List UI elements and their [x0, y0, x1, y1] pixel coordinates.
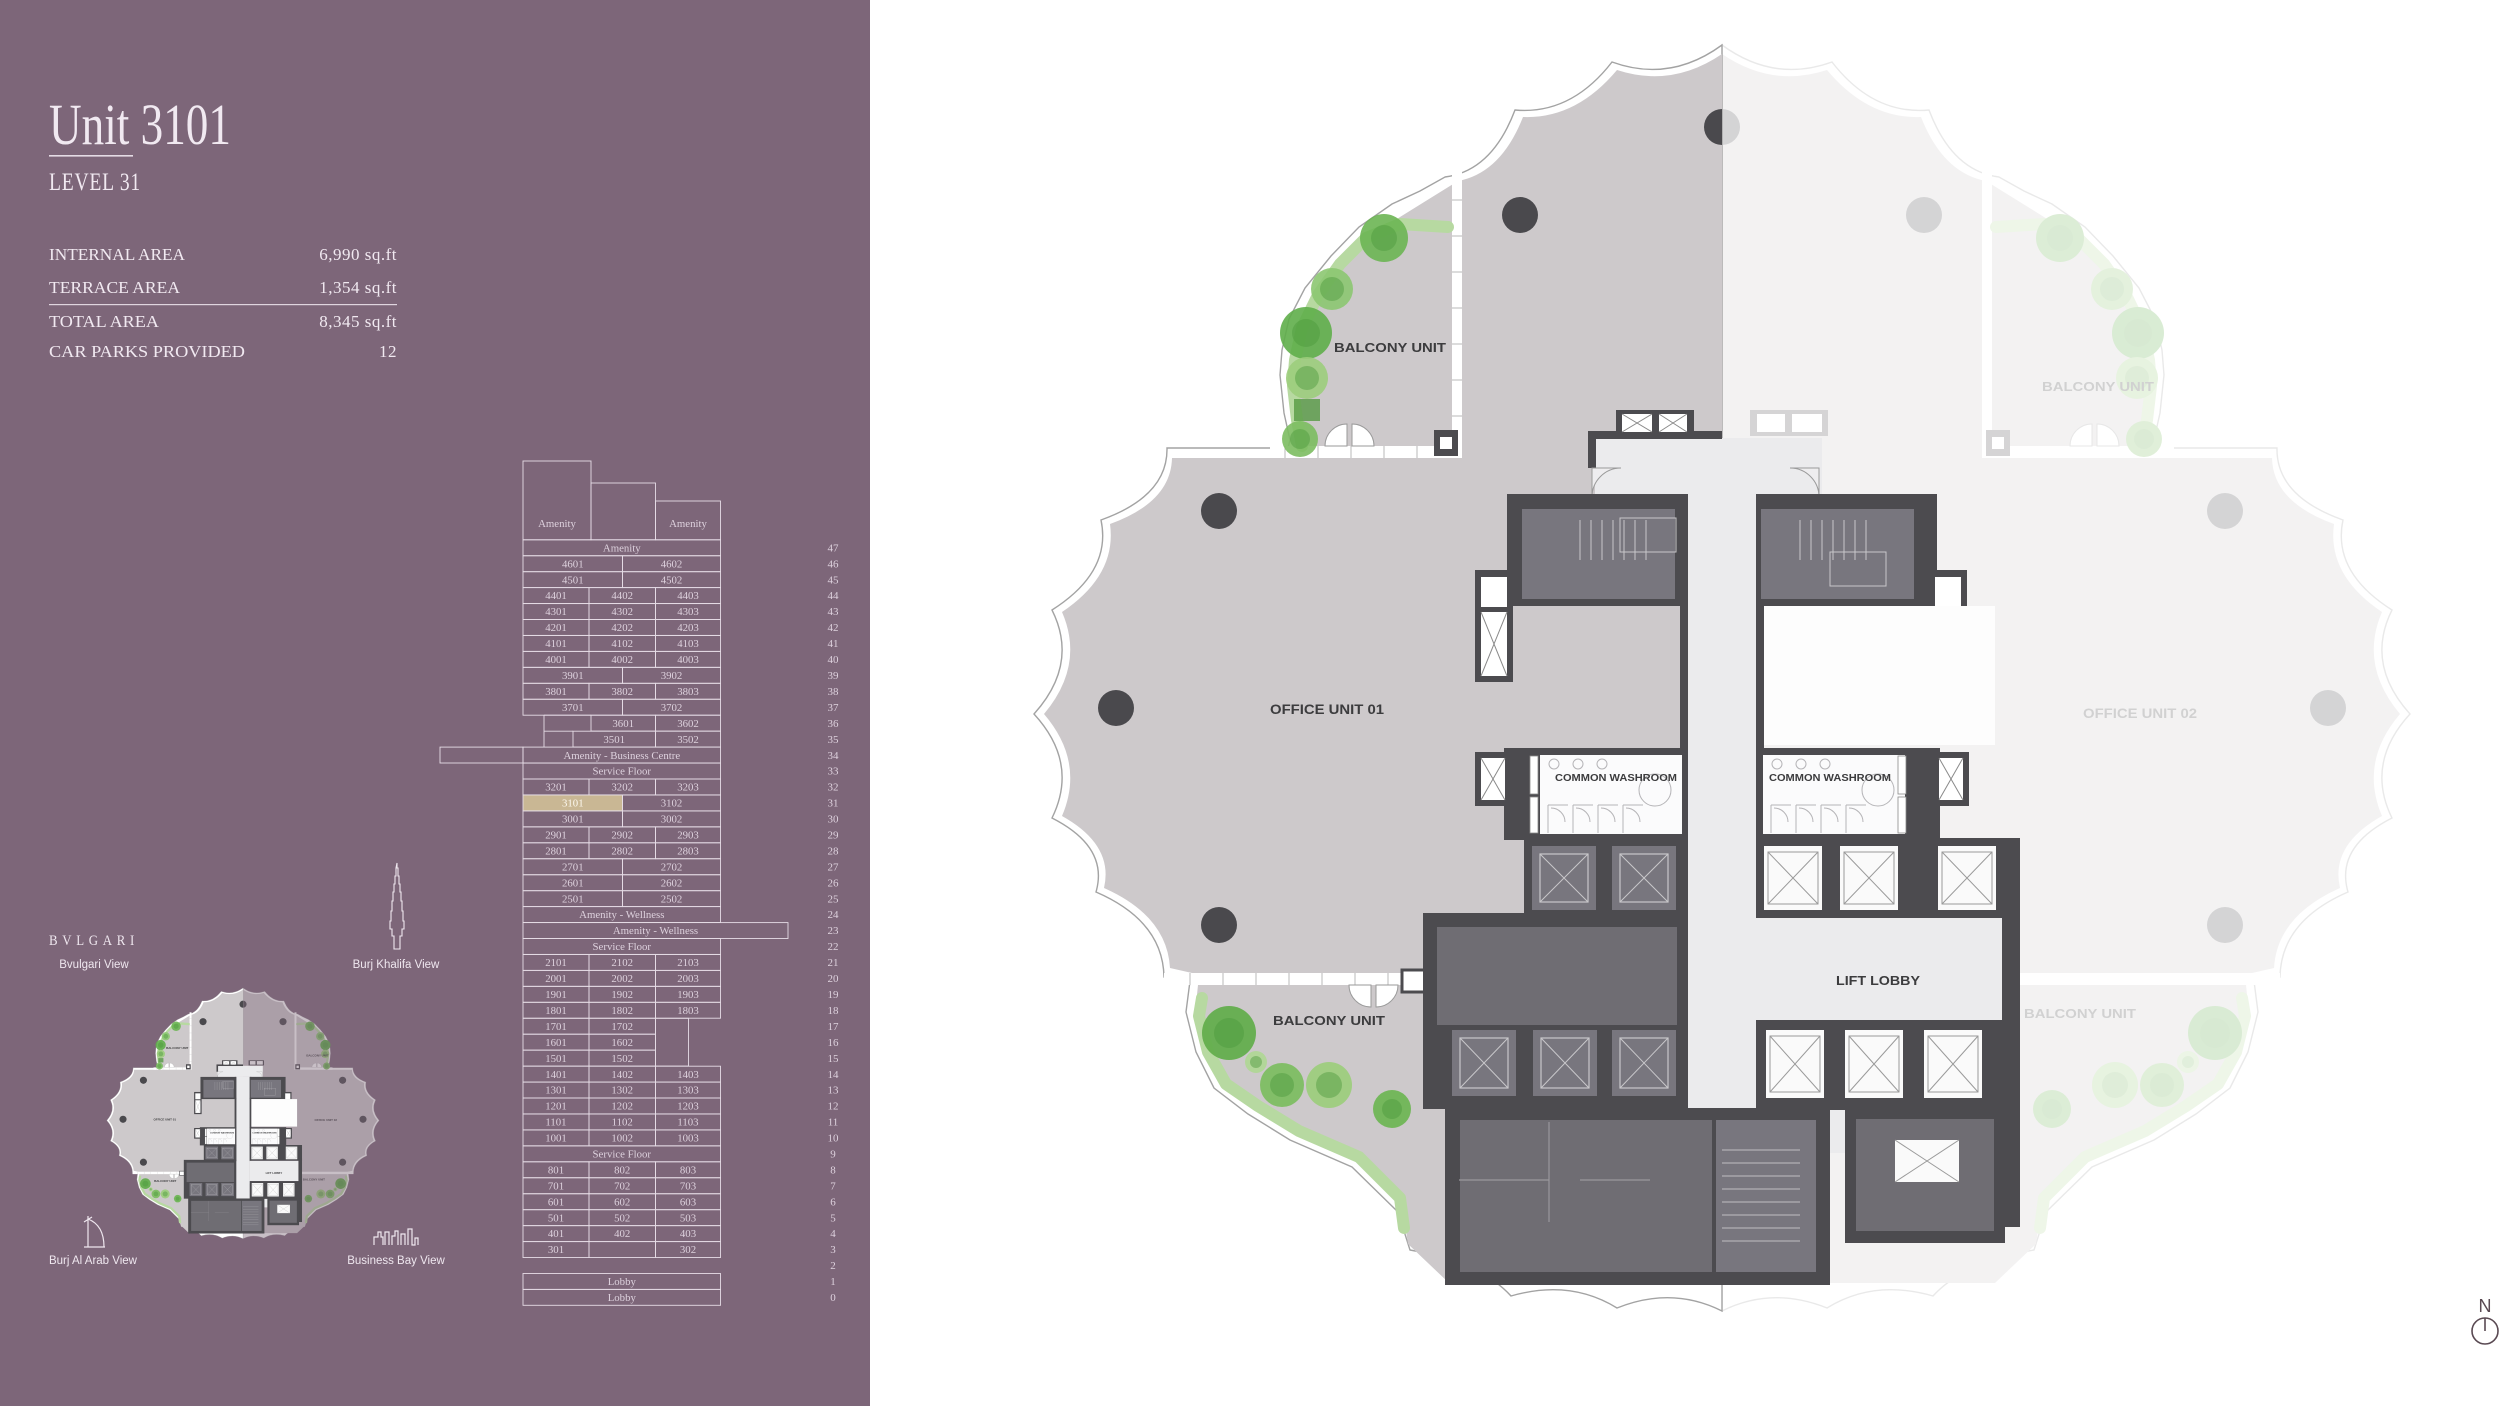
svg-text:2002: 2002 [611, 973, 633, 985]
svg-text:Service Floor: Service Floor [593, 1149, 652, 1161]
svg-text:33: 33 [828, 766, 840, 778]
svg-text:15: 15 [828, 1053, 840, 1065]
svg-text:37: 37 [828, 702, 840, 714]
svg-text:34: 34 [828, 750, 840, 762]
svg-text:4403: 4403 [677, 590, 699, 602]
svg-text:703: 703 [680, 1180, 696, 1192]
svg-text:4002: 4002 [611, 654, 633, 666]
svg-text:27: 27 [828, 861, 840, 873]
svg-text:3701: 3701 [562, 702, 584, 714]
svg-text:4201: 4201 [545, 622, 567, 634]
svg-text:41: 41 [828, 638, 839, 650]
svg-text:1102: 1102 [612, 1117, 633, 1129]
svg-text:2502: 2502 [661, 893, 683, 905]
svg-text:2801: 2801 [545, 845, 567, 857]
svg-text:7: 7 [830, 1180, 836, 1192]
svg-text:1303: 1303 [677, 1085, 699, 1097]
svg-text:2803: 2803 [677, 845, 699, 857]
svg-text:2701: 2701 [562, 861, 584, 873]
svg-text:N: N [2479, 1296, 2492, 1316]
svg-text:1103: 1103 [677, 1117, 698, 1129]
svg-text:32: 32 [828, 782, 839, 794]
svg-text:2102: 2102 [611, 957, 633, 969]
svg-text:3202: 3202 [611, 782, 633, 794]
svg-text:Amenity: Amenity [603, 542, 641, 554]
svg-text:1501: 1501 [545, 1053, 567, 1065]
svg-text:Amenity: Amenity [538, 518, 576, 530]
svg-text:3803: 3803 [677, 686, 699, 698]
svg-text:4601: 4601 [562, 558, 584, 570]
svg-text:3002: 3002 [661, 814, 683, 826]
svg-text:4301: 4301 [545, 606, 567, 618]
svg-text:2902: 2902 [611, 830, 633, 842]
svg-text:1802: 1802 [611, 1005, 633, 1017]
svg-text:3902: 3902 [661, 670, 683, 682]
svg-text:4401: 4401 [545, 590, 567, 602]
svg-text:14: 14 [828, 1069, 840, 1081]
svg-text:Lobby: Lobby [608, 1292, 637, 1304]
svg-text:1702: 1702 [611, 1021, 633, 1033]
svg-text:503: 503 [680, 1212, 696, 1224]
svg-text:21: 21 [828, 957, 839, 969]
svg-text:17: 17 [828, 1021, 840, 1033]
svg-text:45: 45 [828, 574, 840, 586]
svg-text:1903: 1903 [677, 989, 699, 1001]
svg-text:29: 29 [828, 830, 840, 842]
svg-text:4501: 4501 [562, 574, 584, 586]
svg-text:801: 801 [548, 1164, 564, 1176]
svg-text:TERRACE AREA: TERRACE AREA [49, 278, 181, 297]
svg-text:4402: 4402 [611, 590, 633, 602]
svg-text:3501: 3501 [603, 734, 625, 746]
svg-text:3602: 3602 [677, 718, 699, 730]
svg-text:20: 20 [828, 973, 840, 985]
svg-text:8: 8 [830, 1164, 836, 1176]
svg-text:Amenity: Amenity [669, 518, 707, 530]
svg-text:47: 47 [828, 542, 840, 554]
svg-text:12: 12 [379, 342, 397, 361]
svg-text:3102: 3102 [661, 798, 683, 810]
svg-text:4101: 4101 [545, 638, 567, 650]
svg-text:4001: 4001 [545, 654, 567, 666]
svg-text:403: 403 [680, 1228, 696, 1240]
svg-text:6,990 sq.ft: 6,990 sq.ft [319, 245, 397, 264]
svg-text:TOTAL AREA: TOTAL AREA [49, 312, 160, 331]
svg-text:603: 603 [680, 1196, 696, 1208]
svg-text:43: 43 [828, 606, 840, 618]
svg-text:4103: 4103 [677, 638, 699, 650]
svg-text:802: 802 [614, 1164, 630, 1176]
svg-text:6: 6 [830, 1196, 836, 1208]
svg-text:Bvulgari View: Bvulgari View [59, 959, 129, 971]
svg-text:1401: 1401 [545, 1069, 567, 1081]
svg-text:3801: 3801 [545, 686, 567, 698]
svg-text:1101: 1101 [545, 1117, 566, 1129]
svg-text:2: 2 [830, 1260, 836, 1272]
svg-text:4: 4 [830, 1228, 836, 1240]
svg-text:3502: 3502 [677, 734, 699, 746]
svg-text:12: 12 [828, 1101, 839, 1113]
svg-text:22: 22 [828, 941, 839, 953]
svg-text:1902: 1902 [611, 989, 633, 1001]
svg-text:4202: 4202 [611, 622, 633, 634]
svg-text:Amenity - Business Centre: Amenity - Business Centre [563, 750, 680, 762]
svg-text:1003: 1003 [677, 1133, 699, 1145]
svg-text:5: 5 [830, 1212, 836, 1224]
svg-text:8,345 sq.ft: 8,345 sq.ft [319, 312, 397, 331]
svg-text:19: 19 [828, 989, 840, 1001]
svg-text:46: 46 [828, 558, 840, 570]
svg-text:INTERNAL AREA: INTERNAL AREA [49, 245, 186, 264]
svg-text:3201: 3201 [545, 782, 567, 794]
svg-text:1803: 1803 [677, 1005, 699, 1017]
svg-text:LEVEL 31: LEVEL 31 [49, 169, 141, 196]
svg-text:1001: 1001 [545, 1133, 567, 1145]
svg-text:2001: 2001 [545, 973, 567, 985]
svg-text:301: 301 [548, 1244, 564, 1256]
svg-text:28: 28 [828, 845, 840, 857]
svg-text:1602: 1602 [611, 1037, 633, 1049]
svg-text:3702: 3702 [661, 702, 683, 714]
svg-text:Burj Al Arab View: Burj Al Arab View [49, 1255, 138, 1267]
svg-text:1202: 1202 [611, 1101, 633, 1113]
svg-text:Unit 3101: Unit 3101 [49, 92, 231, 157]
svg-text:CAR PARKS PROVIDED: CAR PARKS PROVIDED [49, 342, 245, 361]
svg-text:18: 18 [828, 1005, 840, 1017]
svg-text:BVLGARI: BVLGARI [49, 933, 139, 949]
svg-text:3101: 3101 [562, 798, 584, 810]
svg-text:2101: 2101 [545, 957, 567, 969]
svg-text:0: 0 [830, 1292, 836, 1304]
svg-text:302: 302 [680, 1244, 696, 1256]
svg-text:4203: 4203 [677, 622, 699, 634]
svg-text:11: 11 [828, 1117, 839, 1129]
svg-text:4003: 4003 [677, 654, 699, 666]
svg-text:1701: 1701 [545, 1021, 567, 1033]
svg-text:502: 502 [614, 1212, 630, 1224]
svg-text:402: 402 [614, 1228, 630, 1240]
svg-text:36: 36 [828, 718, 840, 730]
svg-text:2003: 2003 [677, 973, 699, 985]
svg-text:602: 602 [614, 1196, 630, 1208]
svg-text:4602: 4602 [661, 558, 683, 570]
svg-text:1402: 1402 [611, 1069, 633, 1081]
svg-text:3802: 3802 [611, 686, 633, 698]
svg-text:3: 3 [830, 1244, 836, 1256]
svg-text:9: 9 [830, 1149, 836, 1161]
svg-text:23: 23 [828, 925, 840, 937]
svg-text:Service Floor: Service Floor [593, 766, 652, 778]
svg-text:Service Floor: Service Floor [593, 941, 652, 953]
svg-text:Lobby: Lobby [608, 1276, 637, 1288]
svg-text:601: 601 [548, 1196, 564, 1208]
svg-text:1: 1 [830, 1276, 836, 1288]
svg-text:Burj Khalifa View: Burj Khalifa View [353, 959, 440, 971]
svg-text:2602: 2602 [661, 877, 683, 889]
svg-text:Amenity - Wellness: Amenity - Wellness [613, 925, 698, 937]
svg-text:401: 401 [548, 1228, 564, 1240]
svg-text:2103: 2103 [677, 957, 699, 969]
svg-text:3601: 3601 [612, 718, 634, 730]
svg-text:38: 38 [828, 686, 840, 698]
svg-text:2901: 2901 [545, 830, 567, 842]
svg-text:10: 10 [828, 1133, 840, 1145]
svg-text:44: 44 [828, 590, 840, 602]
svg-text:1901: 1901 [545, 989, 567, 1001]
svg-text:501: 501 [548, 1212, 564, 1224]
svg-text:4102: 4102 [611, 638, 633, 650]
svg-text:1801: 1801 [545, 1005, 567, 1017]
svg-text:4302: 4302 [611, 606, 633, 618]
svg-text:1002: 1002 [611, 1133, 633, 1145]
svg-text:1201: 1201 [545, 1101, 567, 1113]
svg-text:2601: 2601 [562, 877, 584, 889]
svg-text:3203: 3203 [677, 782, 699, 794]
svg-text:Business Bay View: Business Bay View [347, 1255, 445, 1267]
svg-text:31: 31 [828, 798, 839, 810]
svg-text:Amenity - Wellness: Amenity - Wellness [579, 909, 664, 921]
svg-text:1403: 1403 [677, 1069, 699, 1081]
svg-text:25: 25 [828, 893, 840, 905]
svg-text:803: 803 [680, 1164, 696, 1176]
svg-text:1,354 sq.ft: 1,354 sq.ft [319, 278, 397, 297]
svg-text:702: 702 [614, 1180, 630, 1192]
svg-text:1502: 1502 [611, 1053, 633, 1065]
svg-text:2702: 2702 [661, 861, 683, 873]
svg-text:13: 13 [828, 1085, 840, 1097]
svg-text:24: 24 [828, 909, 840, 921]
svg-text:35: 35 [828, 734, 840, 746]
svg-text:39: 39 [828, 670, 840, 682]
svg-text:42: 42 [828, 622, 839, 634]
svg-text:1302: 1302 [611, 1085, 633, 1097]
svg-text:16: 16 [828, 1037, 840, 1049]
svg-text:30: 30 [828, 814, 840, 826]
svg-text:701: 701 [548, 1180, 564, 1192]
svg-text:1301: 1301 [545, 1085, 567, 1097]
svg-text:3901: 3901 [562, 670, 584, 682]
svg-text:1601: 1601 [545, 1037, 567, 1049]
svg-text:2802: 2802 [611, 845, 633, 857]
svg-text:4502: 4502 [661, 574, 683, 586]
svg-text:4303: 4303 [677, 606, 699, 618]
svg-text:1203: 1203 [677, 1101, 699, 1113]
svg-text:2903: 2903 [677, 830, 699, 842]
svg-text:3001: 3001 [562, 814, 584, 826]
svg-text:2501: 2501 [562, 893, 584, 905]
svg-text:26: 26 [828, 877, 840, 889]
svg-text:40: 40 [828, 654, 840, 666]
